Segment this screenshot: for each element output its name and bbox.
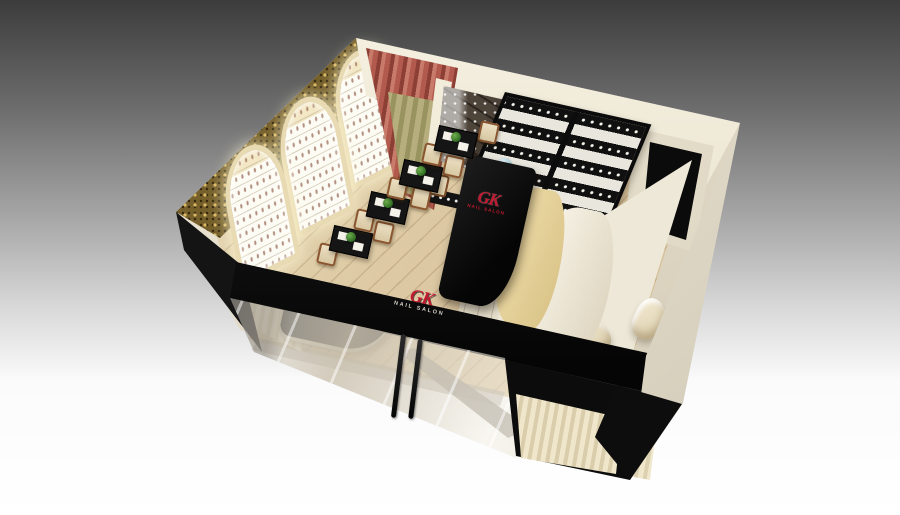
table-plant bbox=[451, 132, 461, 142]
render-canvas: GK NAIL SALON GK NAIL SALON bbox=[0, 0, 900, 515]
table-plant bbox=[346, 232, 356, 242]
table-plant bbox=[383, 198, 393, 208]
table-plant bbox=[416, 166, 426, 176]
